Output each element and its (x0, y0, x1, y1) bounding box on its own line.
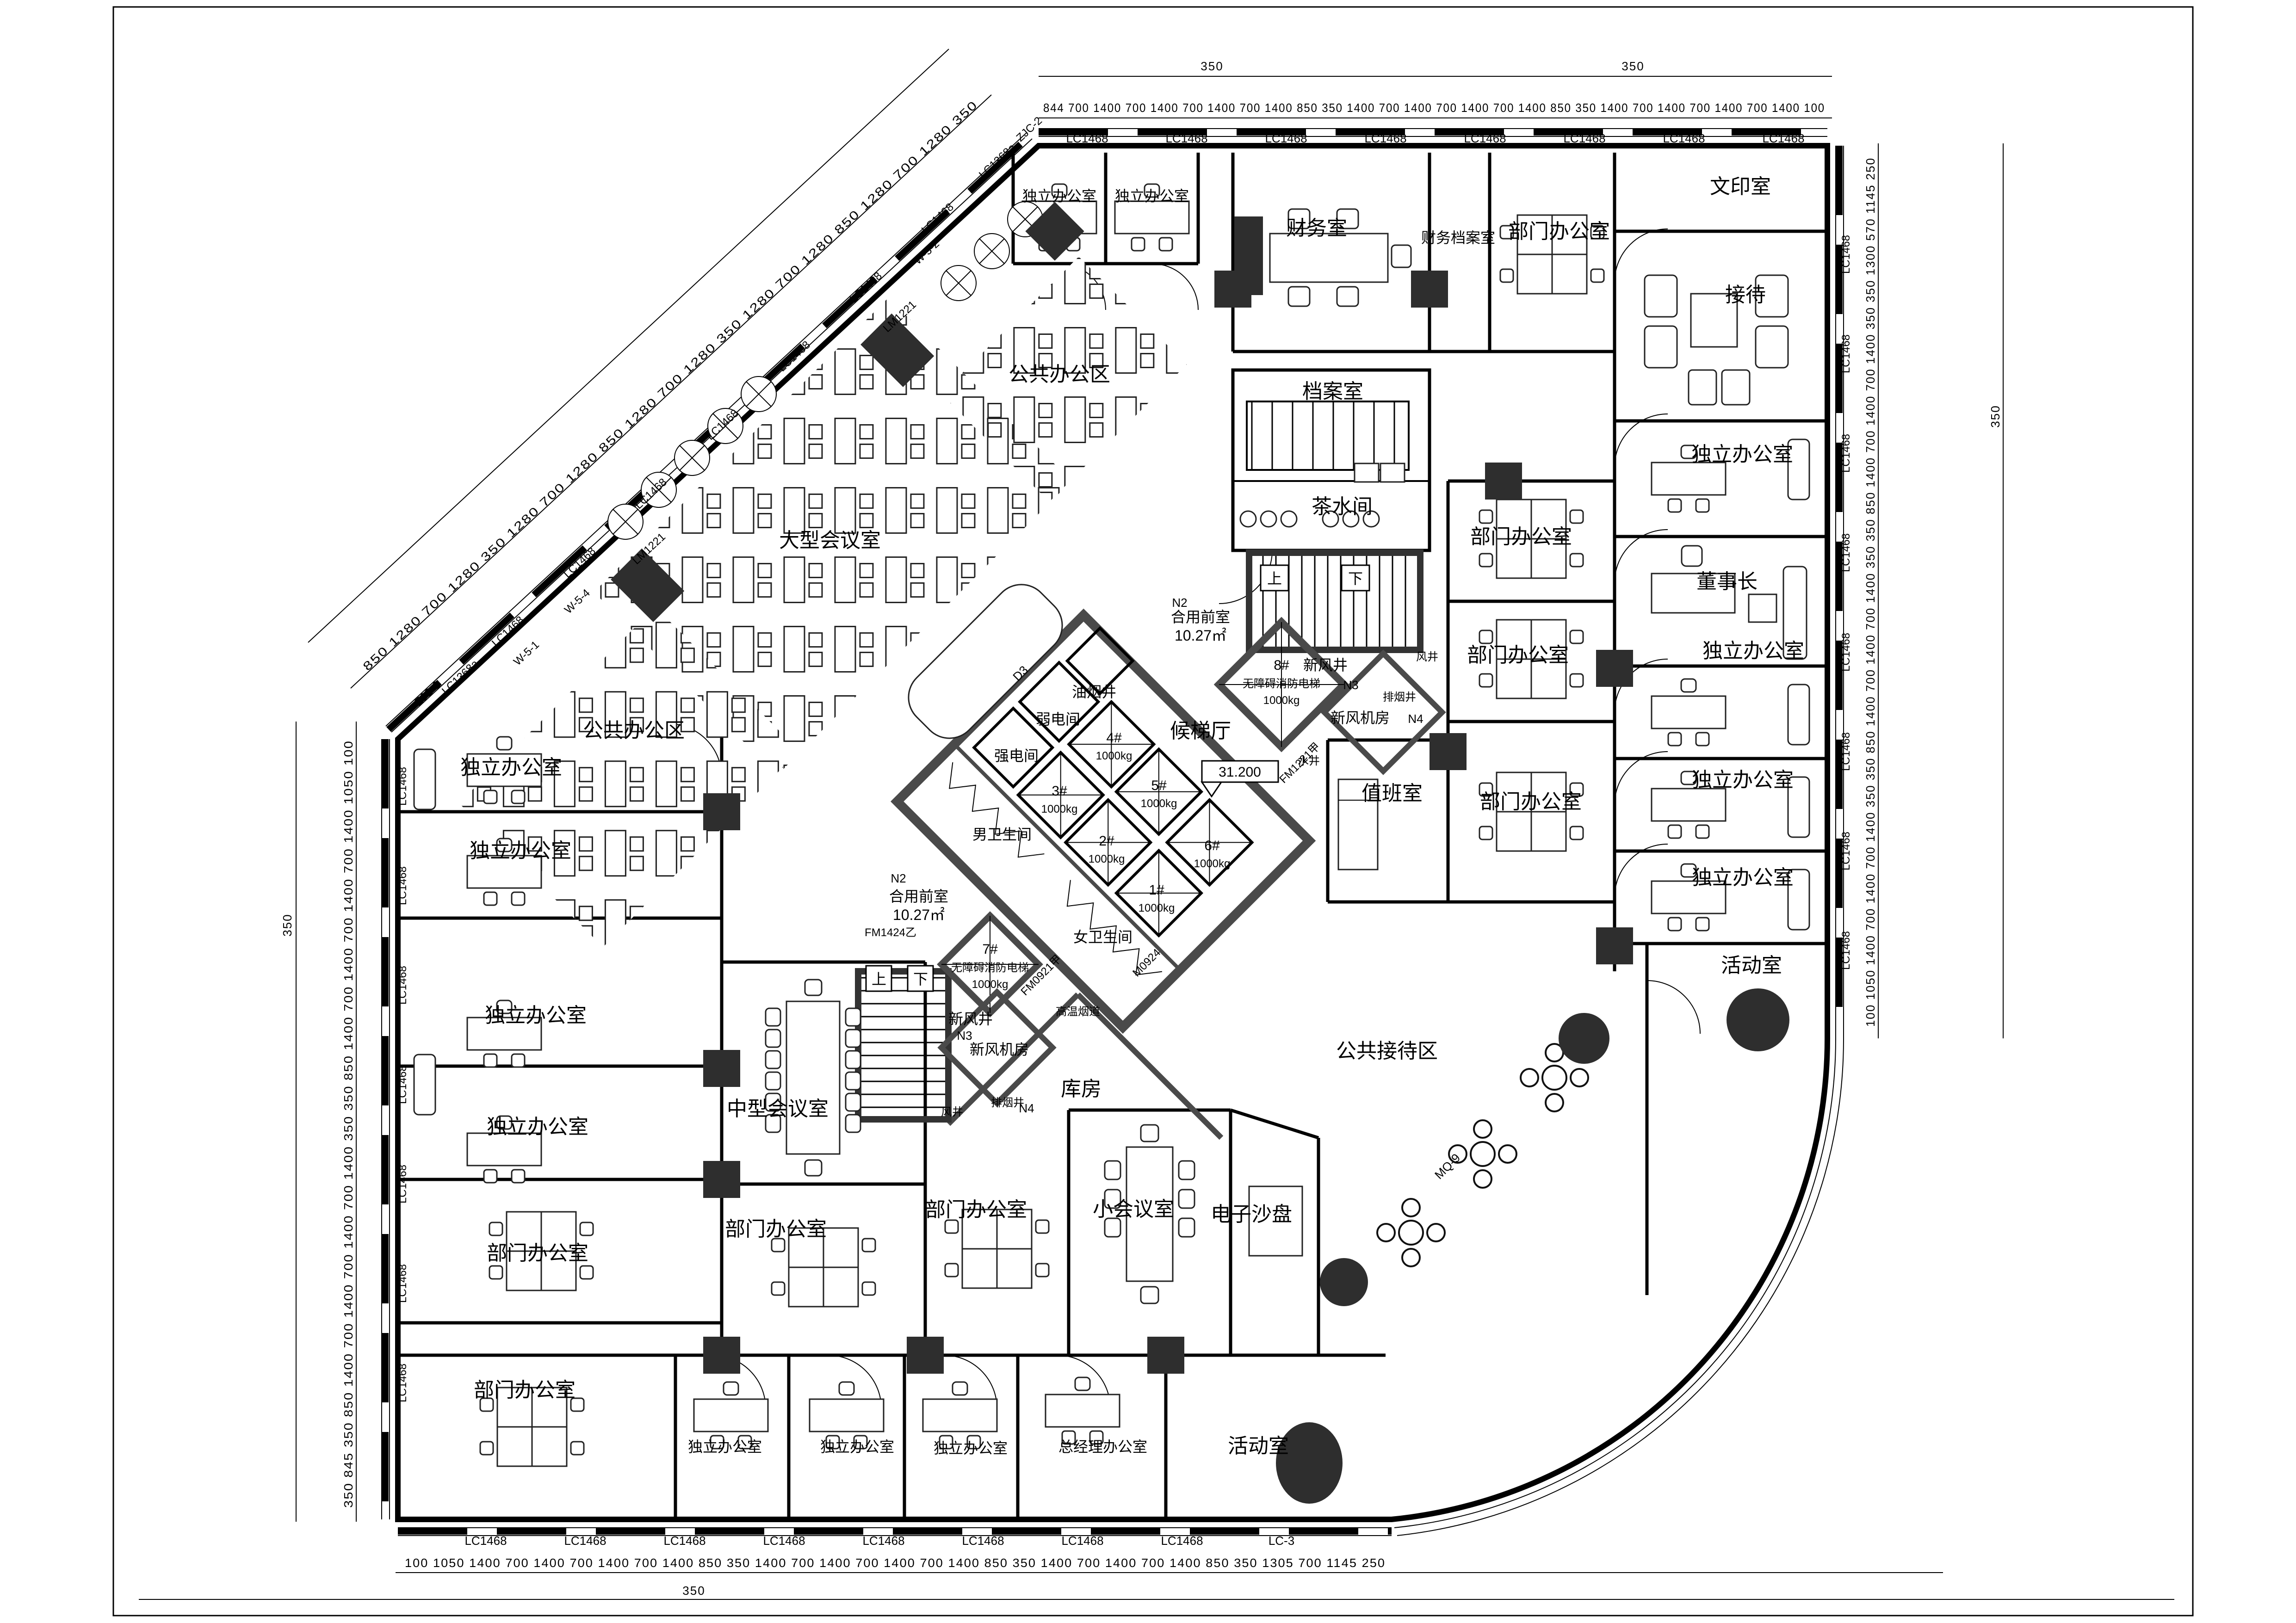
room-label: 独立办公室 (460, 756, 562, 779)
svg-text:N3: N3 (1343, 678, 1358, 692)
room-label: 风井 (941, 1106, 963, 1118)
svg-text:LC1468: LC1468 (1161, 1534, 1203, 1548)
svg-text:6#: 6# (1204, 838, 1220, 853)
stair-up: 上 (1267, 570, 1282, 587)
room-label: 部门办公室 (1480, 790, 1582, 813)
svg-text:N2: N2 (1172, 596, 1187, 610)
svg-text:N4: N4 (1019, 1101, 1034, 1115)
room-label: 独立办公室 (1692, 866, 1794, 889)
room-label: 部门办公室 (474, 1379, 576, 1401)
room-label: 活动室 (1228, 1435, 1289, 1457)
sofa (414, 1055, 435, 1115)
room-label: 独立办公室 (470, 839, 571, 862)
room-label: 茶水间 (1312, 495, 1373, 518)
svg-text:4#: 4# (1106, 730, 1122, 746)
room-label: 新风机房 (970, 1041, 1029, 1058)
room-label: 财务档案室 (1421, 229, 1495, 246)
room-label: 活动室 (1721, 954, 1782, 977)
room-label: 男卫生间 (972, 826, 1032, 843)
room-label: 女卫生间 (1073, 929, 1133, 945)
room-label: 合用前室 (889, 888, 948, 905)
svg-text:1000kg: 1000kg (1141, 797, 1177, 810)
svg-text:LC1468: LC1468 (1663, 131, 1705, 145)
svg-text:LC1468: LC1468 (1840, 732, 1852, 771)
conference-table (786, 1001, 840, 1154)
room-label: 董事长 (1696, 570, 1758, 593)
room-label: 总经理办公室 (1058, 1438, 1147, 1455)
svg-text:1000kg: 1000kg (1139, 902, 1175, 914)
room-label: 部门办公室 (1508, 220, 1610, 243)
chair (1392, 245, 1411, 267)
room-label: 部门办公室 (487, 1242, 588, 1265)
svg-text:LC1468: LC1468 (1061, 1534, 1103, 1548)
room-label: 合用前室 (1171, 609, 1230, 625)
dim-right: 100 1050 1400 700 1400 700 1400 350 350 … (1863, 157, 1877, 1027)
room-label: 部门办公室 (1467, 644, 1569, 666)
dim-sep: 350 (1621, 59, 1644, 73)
room-label: 10.27㎡ (1175, 627, 1226, 644)
stool (1240, 511, 1256, 527)
svg-text:LC1468: LC1468 (962, 1534, 1004, 1548)
svg-text:N4: N4 (1408, 712, 1423, 726)
svg-text:LC1468: LC1468 (396, 1364, 409, 1402)
svg-text:LC1468: LC1468 (1840, 434, 1852, 473)
room-label: 独立办公室 (487, 1116, 588, 1138)
svg-text:5#: 5# (1151, 778, 1167, 793)
room-label: 独立办公室 (1692, 769, 1794, 791)
room-label: 独立办公室 (1702, 640, 1804, 662)
room-label: 库房 (1061, 1078, 1102, 1100)
chair (1337, 287, 1358, 306)
meeting-table (1270, 234, 1388, 282)
svg-text:LC1468: LC1468 (862, 1534, 904, 1548)
stool (1261, 511, 1276, 527)
svg-text:8#: 8# (1274, 658, 1289, 673)
svg-text:LC1468: LC1468 (396, 966, 409, 1005)
stool (1281, 511, 1297, 527)
stair-down: 下 (913, 971, 928, 987)
room-label: 候梯厅 (1170, 720, 1231, 742)
room-label: 独立办公室 (1691, 443, 1793, 466)
svg-text:LC1468: LC1468 (396, 866, 409, 905)
svg-text:N2: N2 (891, 871, 906, 885)
room-label: 油烟井 (1072, 684, 1116, 700)
svg-text:LC1468: LC1468 (396, 1165, 409, 1203)
floor-plan-sheet: 844 700 1400 700 1400 700 1400 700 1400 … (0, 0, 2296, 1623)
elevation-value: 31.200 (1219, 765, 1261, 780)
svg-text:LC1468: LC1468 (464, 1534, 507, 1548)
svg-text:1000kg: 1000kg (1194, 858, 1231, 870)
svg-text:LC1468: LC1468 (1265, 131, 1307, 145)
svg-text:N3: N3 (957, 1029, 972, 1043)
room-label: 独立办公室 (934, 1440, 1008, 1456)
svg-text:1000kg: 1000kg (1041, 803, 1078, 815)
svg-text:LC-3: LC-3 (1269, 1534, 1294, 1548)
svg-text:LC1468: LC1468 (1840, 533, 1852, 572)
room-label: 中型会议室 (727, 1098, 829, 1120)
room-label: 档案室 (1302, 380, 1363, 403)
room-label: 公共接待区 (1336, 1040, 1438, 1062)
room-label: 新风井 (948, 1011, 993, 1027)
side-table (1749, 594, 1776, 622)
room-label: 弱电间 (1036, 711, 1080, 728)
svg-text:LC1468: LC1468 (763, 1534, 805, 1548)
svg-text:LC1468: LC1468 (1840, 931, 1852, 970)
svg-text:无障碍消防电梯: 无障碍消防电梯 (1243, 678, 1320, 690)
svg-text:7#: 7# (982, 942, 998, 957)
room-label: 部门办公室 (1470, 525, 1572, 548)
dim-sep: 350 (1201, 59, 1223, 73)
seat (1689, 370, 1716, 405)
dim-bottom: 100 1050 1400 700 1400 700 1400 700 1400… (405, 1556, 1386, 1570)
svg-text:无障碍消防电梯: 无障碍消防电梯 (951, 962, 1029, 974)
room-label: 独立办公室 (1115, 188, 1189, 204)
svg-text:LC1468: LC1468 (1840, 832, 1852, 870)
svg-text:LC1468: LC1468 (1840, 235, 1852, 274)
svg-text:LC1468: LC1468 (663, 1534, 706, 1548)
room-label: 电子沙盘 (1211, 1203, 1292, 1226)
dim-sep: 350 (1988, 405, 2002, 427)
dim-sep: 350 (682, 1584, 705, 1598)
room-label: 文印室 (1710, 175, 1771, 198)
svg-text:LC1468: LC1468 (1563, 131, 1605, 145)
room-label: 排烟井 (1383, 691, 1416, 704)
room-label: 部门办公室 (725, 1218, 827, 1240)
svg-text:LC1468: LC1468 (1840, 633, 1852, 672)
room-label: 新风机房 (1331, 710, 1390, 726)
svg-text:LC1468: LC1468 (1464, 131, 1506, 145)
svg-text:1000kg: 1000kg (1089, 853, 1125, 865)
svg-text:3#: 3# (1052, 784, 1067, 799)
room-label: 独立办公室 (1022, 188, 1096, 204)
room-label: 小会议室 (1093, 1198, 1174, 1221)
room-label: 独立办公室 (688, 1438, 762, 1455)
svg-text:LC1468: LC1468 (396, 767, 409, 806)
svg-text:LC1468: LC1468 (1066, 131, 1108, 145)
room-label: 强电间 (994, 747, 1039, 764)
stair-down: 下 (1348, 570, 1363, 587)
sofa (1788, 685, 1809, 745)
svg-text:2#: 2# (1099, 833, 1114, 849)
svg-text:LC1468: LC1468 (1364, 131, 1406, 145)
dim-top: 844 700 1400 700 1400 700 1400 700 1400 … (1043, 101, 1825, 115)
dim-sep: 350 (280, 913, 294, 936)
room-label: 新风井 (1303, 657, 1348, 673)
chair (1682, 546, 1702, 566)
room-label: 部门办公室 (925, 1198, 1027, 1221)
room-label: 公共办公区 (583, 719, 685, 742)
svg-text:1000kg: 1000kg (1263, 694, 1300, 707)
room-label: 公共办公区 (1009, 363, 1110, 386)
room-label: 10.27㎡ (893, 907, 945, 923)
room-label: 值班室 (1362, 782, 1423, 805)
svg-text:LC1468: LC1468 (564, 1534, 606, 1548)
sofa (414, 749, 435, 809)
stair-up: 上 (872, 971, 886, 987)
svg-text:FM1424乙: FM1424乙 (865, 926, 916, 939)
floor-plan-drawing: 844 700 1400 700 1400 700 1400 700 1400 … (0, 0, 2296, 1623)
room-label: 高温烟道 (1056, 1006, 1100, 1018)
room-label: 大型会议室 (779, 529, 881, 552)
svg-text:1000kg: 1000kg (972, 978, 1009, 991)
svg-text:LC1468: LC1468 (1762, 131, 1804, 145)
dim-left: 350 845 350 850 1400 700 1400 700 1400 7… (341, 740, 355, 1508)
room-label: 风井 (1416, 651, 1438, 663)
sink (1355, 463, 1379, 482)
armchair (1645, 275, 1677, 317)
room-label: 独立办公室 (485, 1004, 587, 1027)
armchair (1645, 326, 1677, 368)
svg-text:1000kg: 1000kg (1096, 750, 1133, 762)
room-label: 独立办公室 (820, 1438, 894, 1455)
svg-text:1#: 1# (1149, 882, 1164, 898)
archive-shelves (1247, 401, 1409, 470)
svg-text:LC1468: LC1468 (1840, 334, 1852, 373)
room-label: 接待 (1725, 284, 1766, 306)
armchair (1756, 326, 1788, 368)
svg-text:LC1468: LC1468 (396, 1264, 409, 1303)
svg-text:LC1468: LC1468 (396, 1065, 409, 1104)
chair (1288, 287, 1310, 306)
seat (1722, 370, 1750, 405)
room-label: 财务室 (1286, 217, 1347, 240)
svg-text:LC1468: LC1468 (1165, 131, 1207, 145)
sink (1380, 463, 1405, 482)
